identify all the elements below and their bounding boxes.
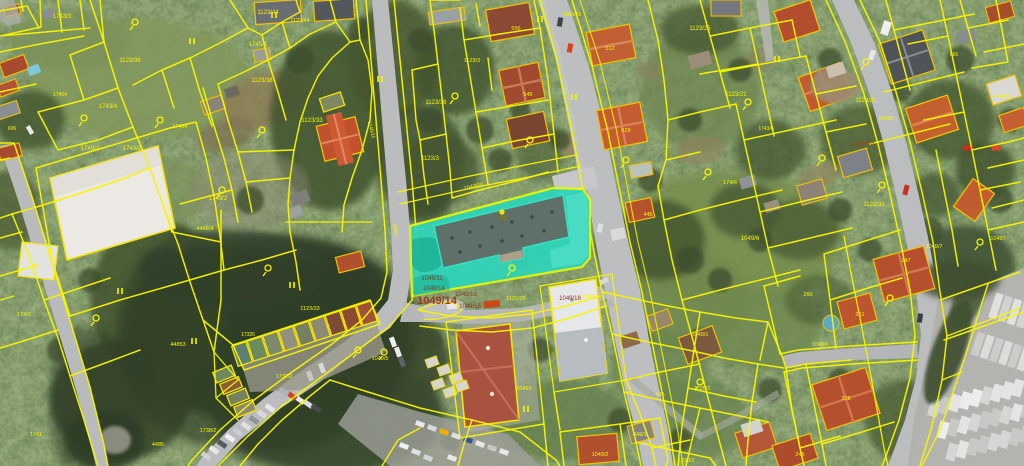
svg-text:1743/2: 1743/2: [123, 146, 142, 152]
svg-text:446: 446: [655, 392, 664, 398]
svg-text:1123/25: 1123/25: [689, 26, 711, 32]
svg-text:4485: 4485: [152, 442, 164, 448]
svg-text:1123/44: 1123/44: [257, 10, 279, 16]
svg-text:1741: 1741: [30, 432, 42, 438]
svg-text:17454: 17454: [172, 124, 187, 130]
svg-text:1049/2: 1049/2: [592, 452, 609, 458]
svg-text:1123/44: 1123/44: [290, 18, 309, 24]
svg-text:1123/31: 1123/31: [855, 98, 877, 104]
svg-text:251: 251: [855, 312, 864, 318]
svg-text:546: 546: [523, 92, 532, 98]
svg-text:606: 606: [8, 126, 17, 132]
svg-text:4466/4: 4466/4: [197, 226, 214, 232]
svg-text:1743/3: 1743/3: [53, 14, 72, 20]
svg-text:1123/3: 1123/3: [464, 58, 480, 64]
svg-text:1049/7: 1049/7: [926, 244, 943, 250]
svg-text:1743/6: 1743/6: [758, 126, 774, 132]
svg-text:1123/33: 1123/33: [300, 306, 319, 312]
svg-text:1732/2: 1732/2: [276, 374, 293, 380]
svg-text:10492: 10492: [580, 294, 595, 300]
svg-text:17326: 17326: [241, 332, 255, 338]
svg-text:328: 328: [841, 396, 850, 402]
svg-text:1745/1: 1745/1: [249, 42, 268, 48]
svg-text:666: 666: [950, 52, 959, 58]
svg-text:1049/18: 1049/18: [455, 292, 477, 298]
svg-text:1048/6: 1048/6: [812, 342, 829, 348]
svg-text:1123/32: 1123/32: [863, 202, 885, 208]
svg-text:1049/6: 1049/6: [741, 236, 760, 242]
svg-text:548: 548: [497, 216, 508, 222]
svg-text:17454: 17454: [53, 92, 67, 98]
svg-text:1123/38: 1123/38: [251, 78, 273, 84]
svg-text:44853: 44853: [170, 342, 185, 348]
svg-text:1025/2: 1025/2: [694, 386, 711, 392]
svg-text:1123/3: 1123/3: [421, 156, 440, 162]
svg-text:10493: 10493: [516, 386, 531, 392]
svg-text:449/1: 449/1: [633, 432, 647, 438]
svg-text:1123/36: 1123/36: [425, 100, 447, 106]
svg-text:1049/14: 1049/14: [423, 286, 445, 292]
svg-text:260: 260: [803, 292, 812, 298]
svg-text:1123/33: 1123/33: [301, 118, 323, 124]
svg-text:174/2: 174/2: [17, 312, 31, 318]
svg-text:1123/35: 1123/35: [506, 296, 525, 302]
svg-text:174/6: 174/6: [723, 180, 737, 186]
svg-text:1730/2: 1730/2: [678, 458, 695, 464]
svg-text:512: 512: [605, 46, 614, 52]
svg-text:10497: 10497: [990, 236, 1005, 242]
svg-text:1049/14: 1049/14: [849, 141, 874, 148]
svg-text:529: 529: [621, 128, 630, 134]
svg-text:1749/2: 1749/2: [81, 146, 100, 152]
svg-text:556: 556: [511, 26, 520, 32]
svg-text:247: 247: [901, 258, 910, 264]
svg-text:1049/15: 1049/15: [459, 304, 481, 310]
svg-text:245: 245: [795, 452, 804, 458]
svg-text:1049/18: 1049/18: [559, 296, 581, 302]
svg-text:10486: 10486: [878, 116, 893, 122]
svg-text:1743/2: 1743/2: [209, 196, 228, 202]
svg-text:1743/4: 1743/4: [99, 104, 118, 110]
svg-text:446: 446: [643, 212, 652, 218]
svg-text:1123/36: 1123/36: [119, 58, 141, 64]
svg-text:1049/1: 1049/1: [692, 332, 709, 338]
svg-text:1049/11: 1049/11: [421, 276, 443, 282]
svg-text:1049/5: 1049/5: [372, 356, 389, 362]
svg-text:1123/21: 1123/21: [725, 92, 747, 98]
svg-text:1049/19: 1049/19: [563, 12, 581, 18]
svg-text:1738/2: 1738/2: [200, 428, 217, 434]
svg-text:1965/6: 1965/6: [994, 94, 1011, 100]
svg-text:1049/14: 1049/14: [417, 295, 458, 307]
